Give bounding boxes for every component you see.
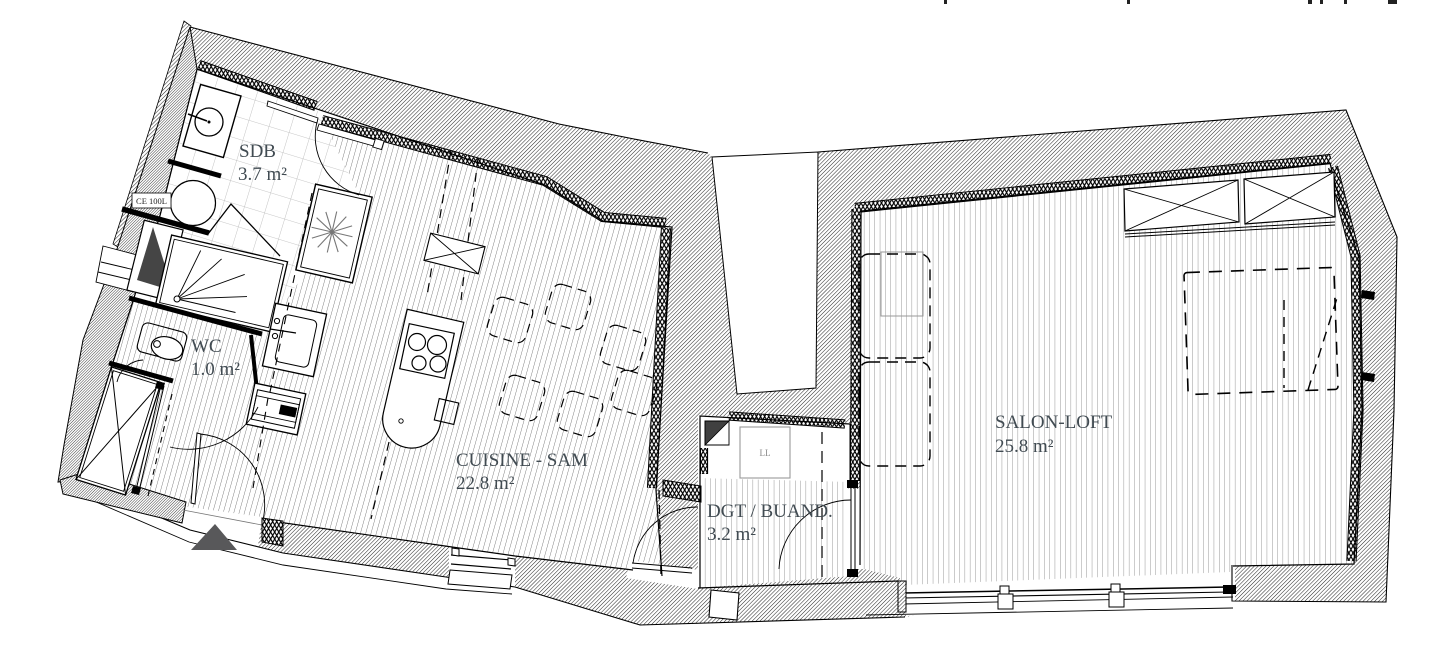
svg-text:WC: WC [191,336,222,357]
svg-text:3.7 m²: 3.7 m² [238,164,287,185]
svg-text:22.8 m²: 22.8 m² [456,473,515,494]
svg-text:1.0 m²: 1.0 m² [191,359,240,380]
svg-text:SALON-LOFT: SALON-LOFT [995,412,1113,433]
svg-text:3.2 m²: 3.2 m² [707,524,756,545]
svg-text:25.8 m²: 25.8 m² [995,436,1054,457]
svg-text:CUISINE - SAM: CUISINE - SAM [456,450,588,471]
svg-text:LL: LL [760,448,771,458]
svg-text:SDB: SDB [239,141,276,162]
svg-text:CE 100L: CE 100L [136,196,167,206]
svg-text:DGT / BUAND.: DGT / BUAND. [707,501,833,522]
